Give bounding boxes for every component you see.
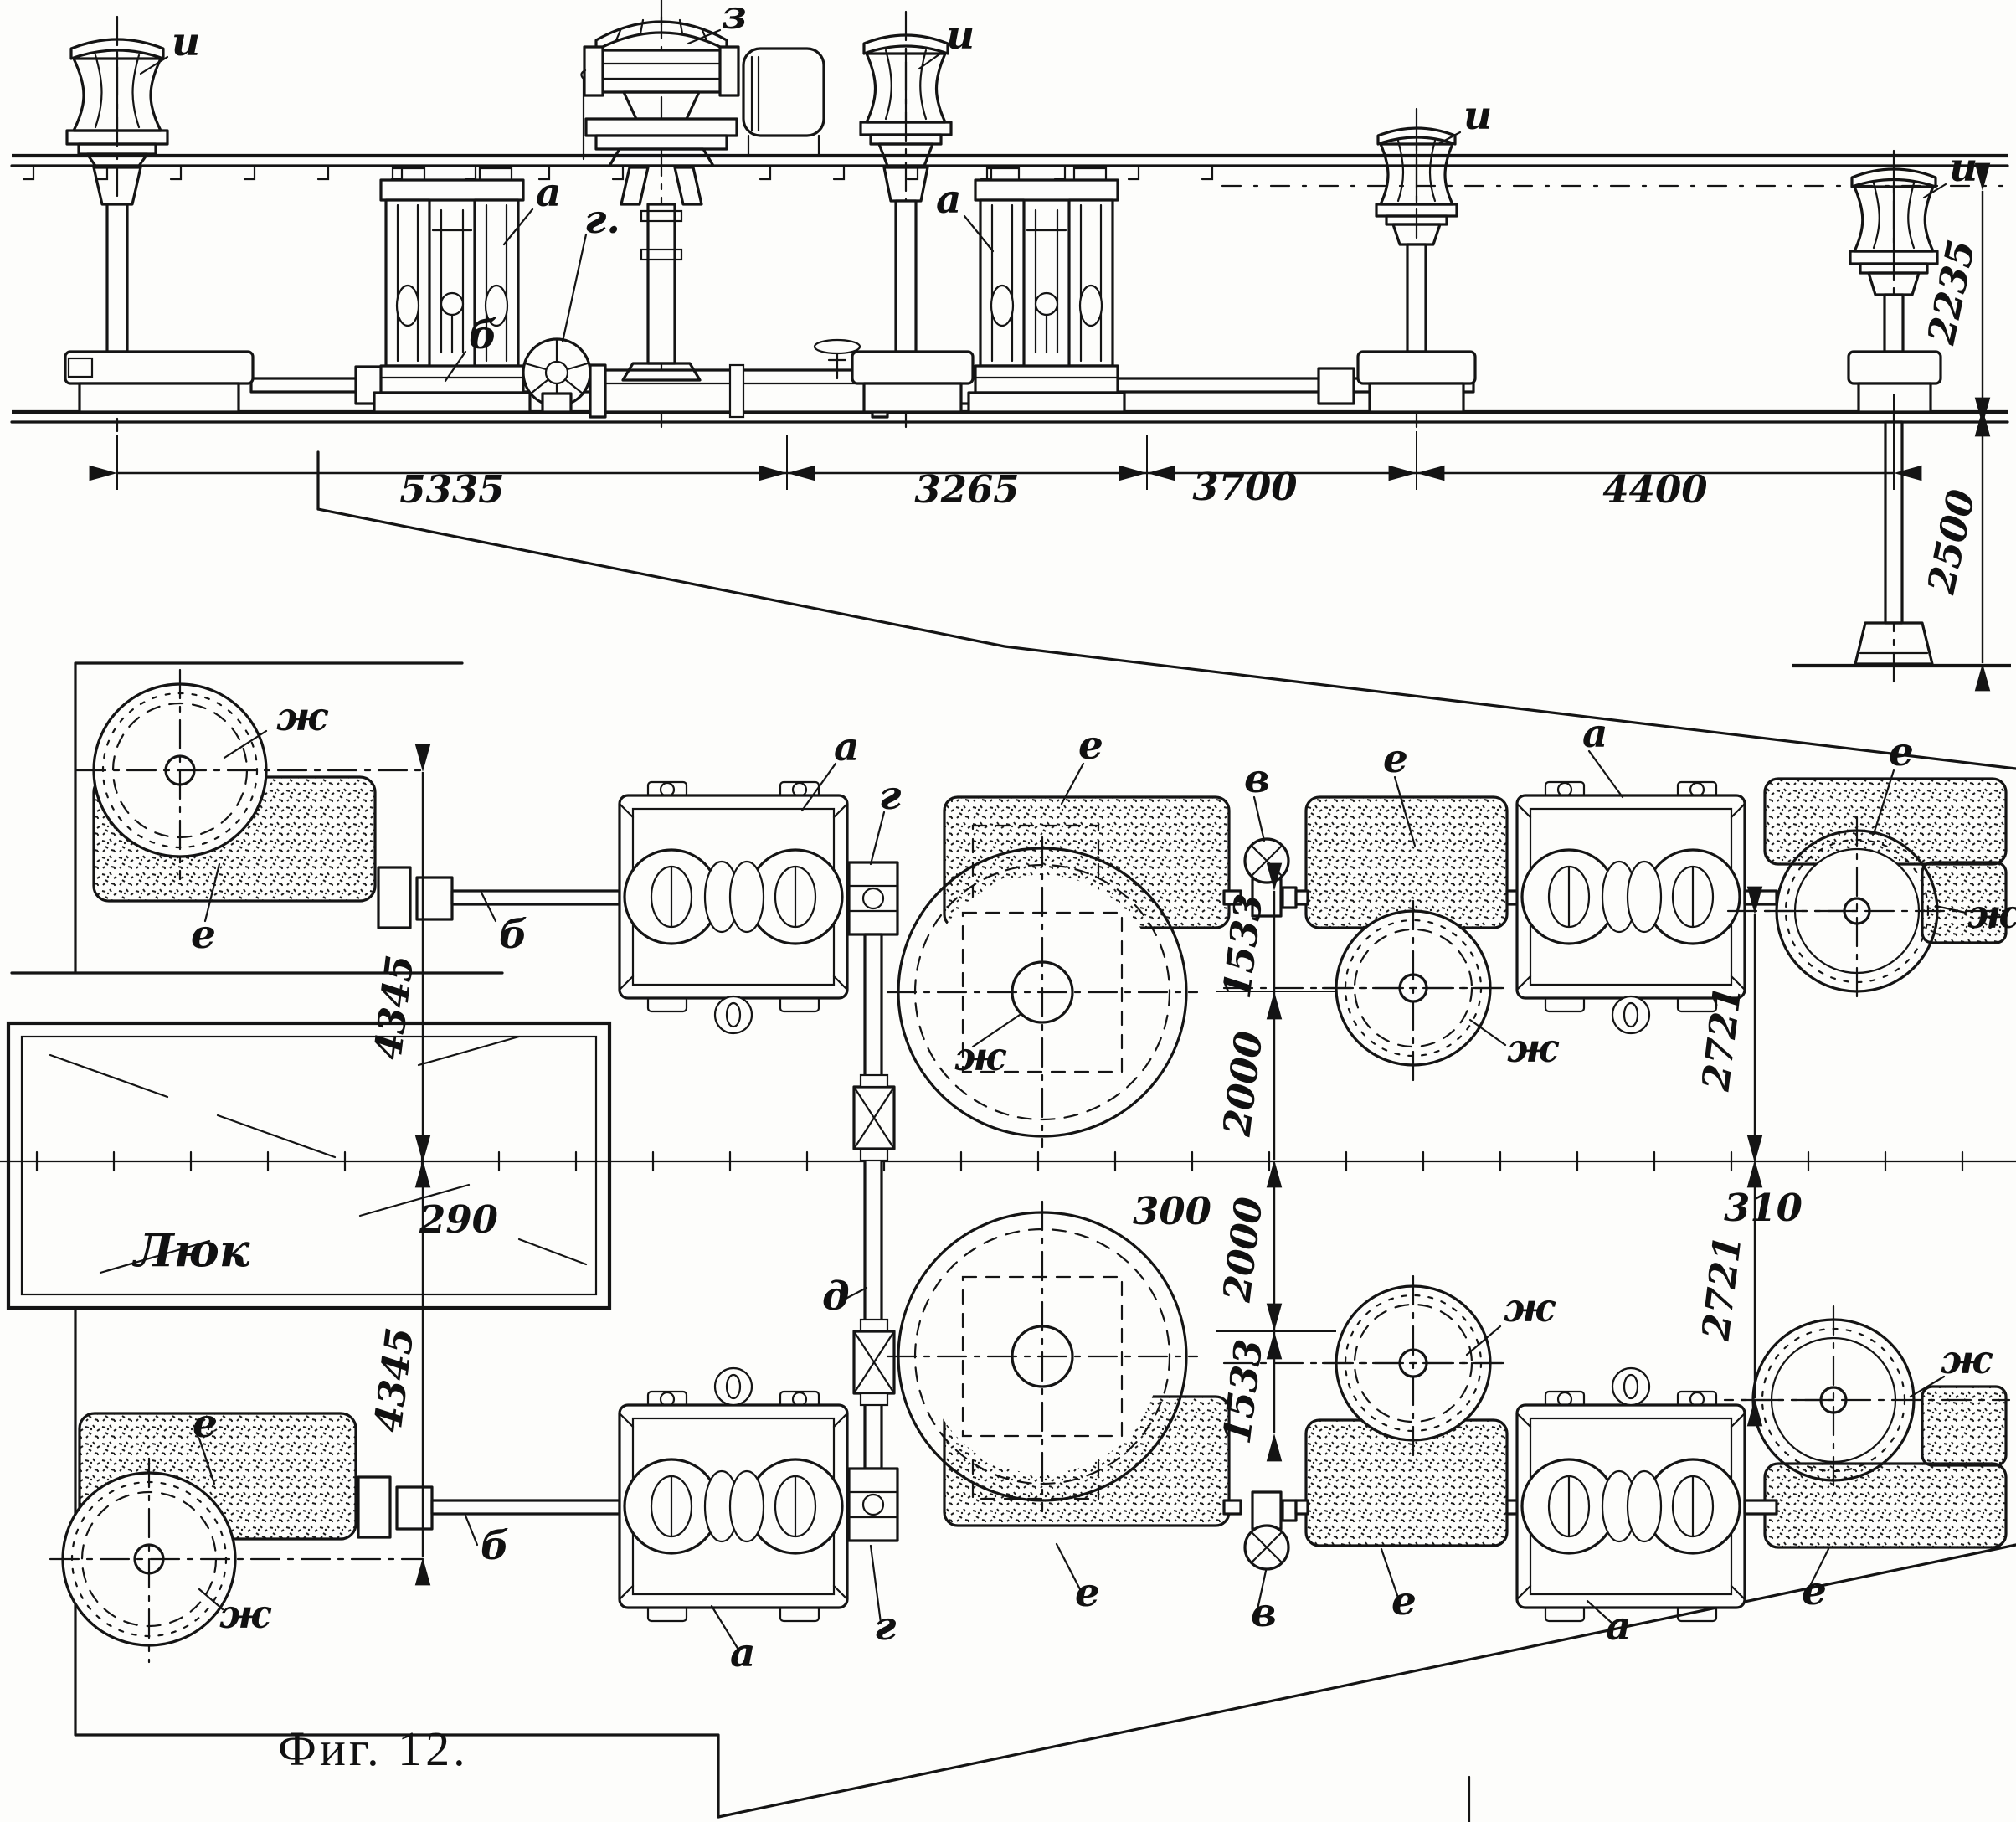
- capstan-lower-left-plan: [50, 1413, 620, 1662]
- callout-zh-right-upper: ж: [1967, 892, 2016, 938]
- deck-edge-top-diagonal: [318, 509, 2016, 769]
- callout-gear-g: г.: [584, 197, 620, 243]
- callout-zh-mid-upper: ж: [1507, 1026, 1560, 1072]
- dim-290: 290: [419, 1197, 498, 1242]
- callout-engine-a-2: а: [936, 177, 961, 223]
- callout-v-upper: в: [1244, 756, 1270, 802]
- callout-e-wheel-lower: е: [1075, 1570, 1100, 1616]
- dim-4345-upper: 4345: [366, 953, 423, 1063]
- dim-5335: 5335: [399, 467, 504, 512]
- callout-e-right-lower: е: [1802, 1568, 1827, 1614]
- dim-2721-upper: 2721: [1694, 984, 1751, 1094]
- callout-g-lower: г: [874, 1603, 896, 1650]
- callout-capstan-i-2: и: [946, 13, 975, 59]
- dim-300: 300: [1133, 1189, 1211, 1233]
- dim-4400: 4400: [1602, 467, 1707, 512]
- callout-e-lower-left: е: [193, 1401, 218, 1447]
- dim-310: 310: [1724, 1186, 1803, 1230]
- callout-g-upper: г: [879, 773, 901, 819]
- capstan-upper-left-plan: [77, 670, 620, 928]
- dim-2000-lower: 2000: [1215, 1195, 1272, 1305]
- vertical-shaft-plan: [854, 934, 894, 1469]
- callout-b-upper: б: [499, 912, 527, 958]
- callout-e-mid-upper: е: [1383, 736, 1408, 782]
- hatch-outline: [8, 1023, 609, 1308]
- callout-e-upper-left: е: [191, 912, 216, 958]
- callout-capstan-i-1: и: [172, 19, 200, 65]
- technical-drawing-svg: и з а г. б и а и и 5335 3265 3700 4400 2…: [0, 0, 2016, 1822]
- callout-zh-mid-lower: ж: [1504, 1285, 1556, 1331]
- figure-caption: Фиг. 12.: [278, 1722, 469, 1776]
- elevation-view: [12, 0, 2011, 682]
- dim-2500: 2500: [1919, 486, 1984, 599]
- valve-lower-plan: [1245, 1492, 1296, 1569]
- centerline: [0, 1152, 2016, 1171]
- callout-b-lower: б: [481, 1523, 509, 1569]
- dim-3700: 3700: [1192, 465, 1297, 509]
- callout-zh-wheel-upper: ж: [954, 1034, 1007, 1080]
- callout-capstan-i-4: и: [1949, 145, 1977, 191]
- callout-zh-upper-left: ж: [276, 694, 329, 740]
- big-wheel-lower-plan: [887, 1202, 1241, 1526]
- engine-2-elevation: [969, 168, 1124, 412]
- callout-e-mid-lower: е: [1391, 1578, 1417, 1624]
- capstan-left-elevation: [65, 17, 253, 431]
- deck-beam-hooks: [23, 166, 1212, 179]
- callout-capstan-i-3: и: [1463, 93, 1492, 139]
- bevel-gear-upper-plan: [849, 862, 897, 934]
- callout-d-shaft: д: [822, 1274, 850, 1320]
- dim-2000-upper: 2000: [1215, 1029, 1272, 1140]
- engine-1-elevation: [374, 168, 530, 412]
- callout-zh-lower-left: ж: [219, 1592, 272, 1638]
- dim-1533-lower: 1533: [1215, 1337, 1272, 1447]
- callout-zh-right-lower: ж: [1941, 1337, 1993, 1383]
- callout-windlass-z: з: [722, 0, 747, 39]
- steam-engine-casing: [743, 49, 824, 156]
- dim-2721-lower: 2721: [1694, 1233, 1751, 1344]
- dim-4345-lower: 4345: [366, 1325, 423, 1435]
- windlass-elevation: [581, 0, 887, 427]
- deck-edges-plan: [12, 452, 2016, 1822]
- callout-engine-a-1: а: [536, 170, 561, 216]
- gearbox-3-plan: [620, 1368, 847, 1621]
- bevel-gear-lower-plan: [849, 1469, 897, 1541]
- callout-e-right-upper: е: [1889, 729, 1914, 775]
- dim-3265: 3265: [914, 467, 1019, 512]
- gearbox-1-plan: [620, 782, 847, 1033]
- callout-a-gearbox-3: а: [730, 1630, 755, 1676]
- callout-a-gearbox-2: а: [1582, 711, 1607, 757]
- figure-12-drawing: и з а г. б и а и и 5335 3265 3700 4400 2…: [0, 0, 2016, 1822]
- callout-e-wheel-upper: е: [1078, 723, 1103, 769]
- gear-wheel-elevation: [523, 339, 590, 412]
- callout-v-lower: в: [1251, 1590, 1277, 1636]
- hatch-label: Люк: [131, 1223, 250, 1277]
- capstan-mid-lower-plan: [1296, 1276, 1519, 1546]
- callout-a-gearbox-1: а: [834, 724, 859, 770]
- capstan-mid-upper-plan: [1296, 797, 1519, 1080]
- callout-shaft-b: б: [469, 312, 497, 358]
- dim-2235: 2235: [1919, 236, 1984, 349]
- machinery-deck: [12, 412, 2008, 422]
- big-wheel-upper-plan: [887, 797, 1241, 1147]
- gearbox-4-plan: [1517, 1368, 1745, 1621]
- callout-a-gearbox-4: а: [1606, 1603, 1631, 1650]
